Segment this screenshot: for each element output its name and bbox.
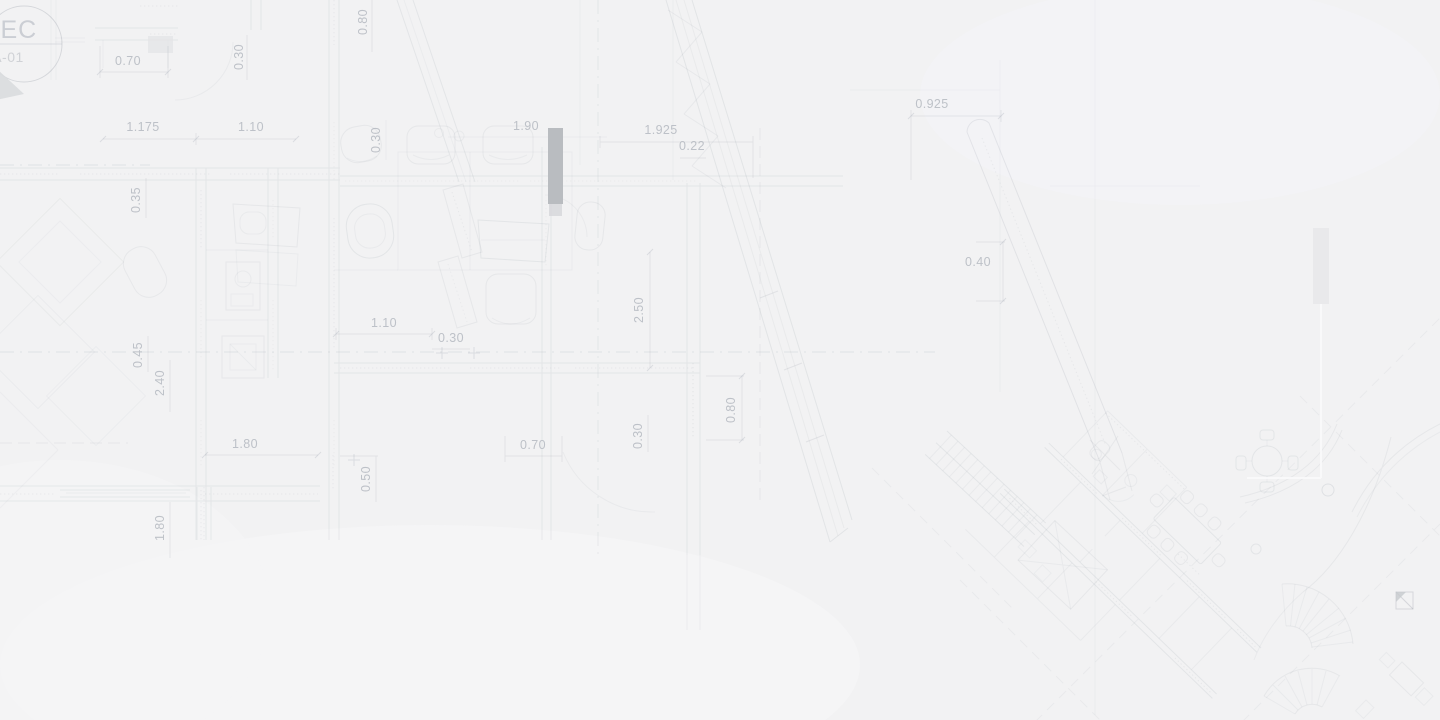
dimension-label: 2.50 [632,297,646,323]
dimension-label: 0.30 [232,44,246,70]
dimension-label: 2.40 [153,370,167,396]
highlight-bar-light [1313,228,1329,304]
dimension-label: 1.175 [126,120,159,134]
fan-stair-upper [1282,584,1353,648]
dimension-label: 1.10 [238,120,264,134]
stair-run [916,425,1108,609]
corner-furniture [1377,649,1436,706]
crane-boom-middle [666,0,852,542]
section-marker-label: SEC [0,16,37,44]
dimension-label: 1.90 [513,119,539,133]
plant-symbol [1236,430,1298,492]
blueprint-canvas: SEC A-01 0.700.800.301.1751.101.901.9250… [0,0,1440,720]
dimension-label: 0.30 [438,331,464,345]
dimension-label: 0.40 [965,255,991,269]
dimension-label: 0.70 [115,54,141,68]
dimension-label: 0.30 [369,127,383,153]
dimension-label: 1.80 [153,515,167,541]
dimension-label: 0.45 [131,342,145,368]
dimension-label: 0.22 [679,139,705,153]
north-marker [1396,592,1413,609]
section-arrow [0,68,24,100]
conference-table [1131,475,1243,586]
dimension-label: 0.70 [520,438,546,452]
dimension-label: 0.50 [359,466,373,492]
section-marker: SEC A-01 [0,6,62,100]
corner-desk [1356,700,1374,718]
rotated-floor-plan [916,397,1440,720]
dimension-label: 1.80 [232,437,258,451]
dimension-label: 0.35 [129,187,143,213]
dimension-label: 0.925 [915,97,948,111]
dimension-label: 0.80 [724,397,738,423]
dimension-label: 1.10 [371,316,397,330]
fan-stair-lower [1264,668,1340,714]
section-marker-sheet: A-01 [0,49,24,65]
blueprint-drawing: SEC A-01 0.700.800.301.1751.101.901.9250… [0,0,1440,720]
highlight-bar-dark [548,128,563,204]
dimension-label: 1.925 [644,123,677,137]
dimension-label: 0.80 [356,9,370,35]
dimension-labels: 0.700.800.301.1751.101.901.9250.220.9250… [115,9,991,541]
dimension-label: 0.30 [631,423,645,449]
